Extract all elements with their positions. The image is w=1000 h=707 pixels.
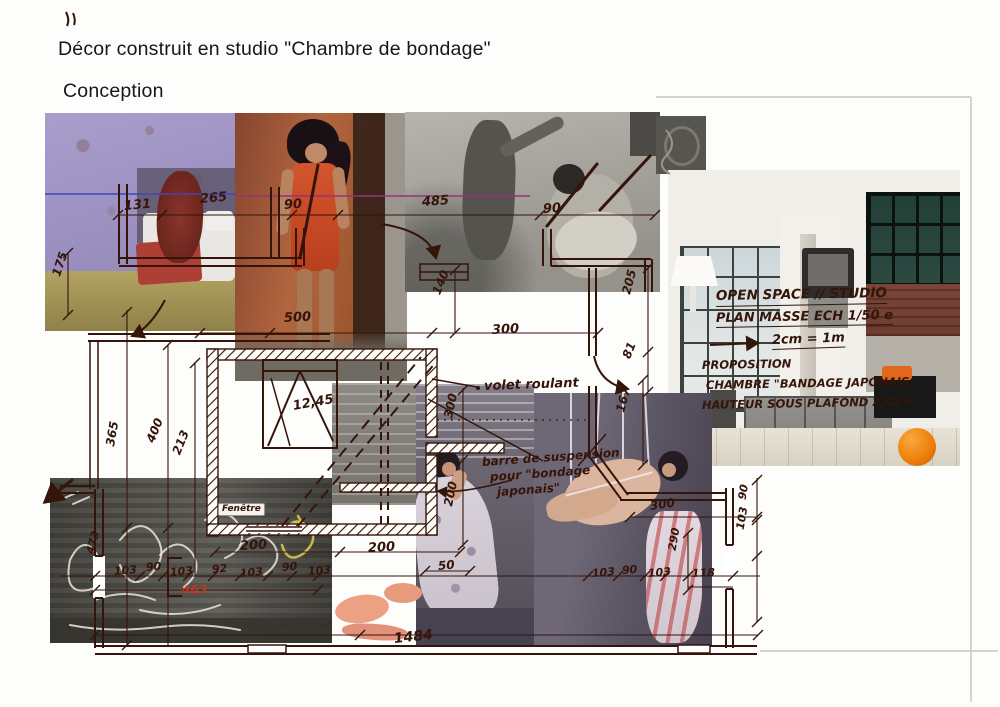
dimension-lines: [60, 210, 763, 650]
floor-plan-drawing: [0, 0, 1000, 707]
hatched-room-walls: [207, 349, 504, 536]
concept-board-page: { "page": { "title": "Décor construit en…: [0, 0, 1000, 707]
plan-walls: [45, 156, 757, 654]
page-edge-lines: [656, 97, 998, 702]
closet-detail: [263, 360, 337, 448]
leader-lines: [428, 343, 758, 492]
corner-mark: [66, 12, 75, 26]
patch-squiggle: [662, 130, 672, 174]
